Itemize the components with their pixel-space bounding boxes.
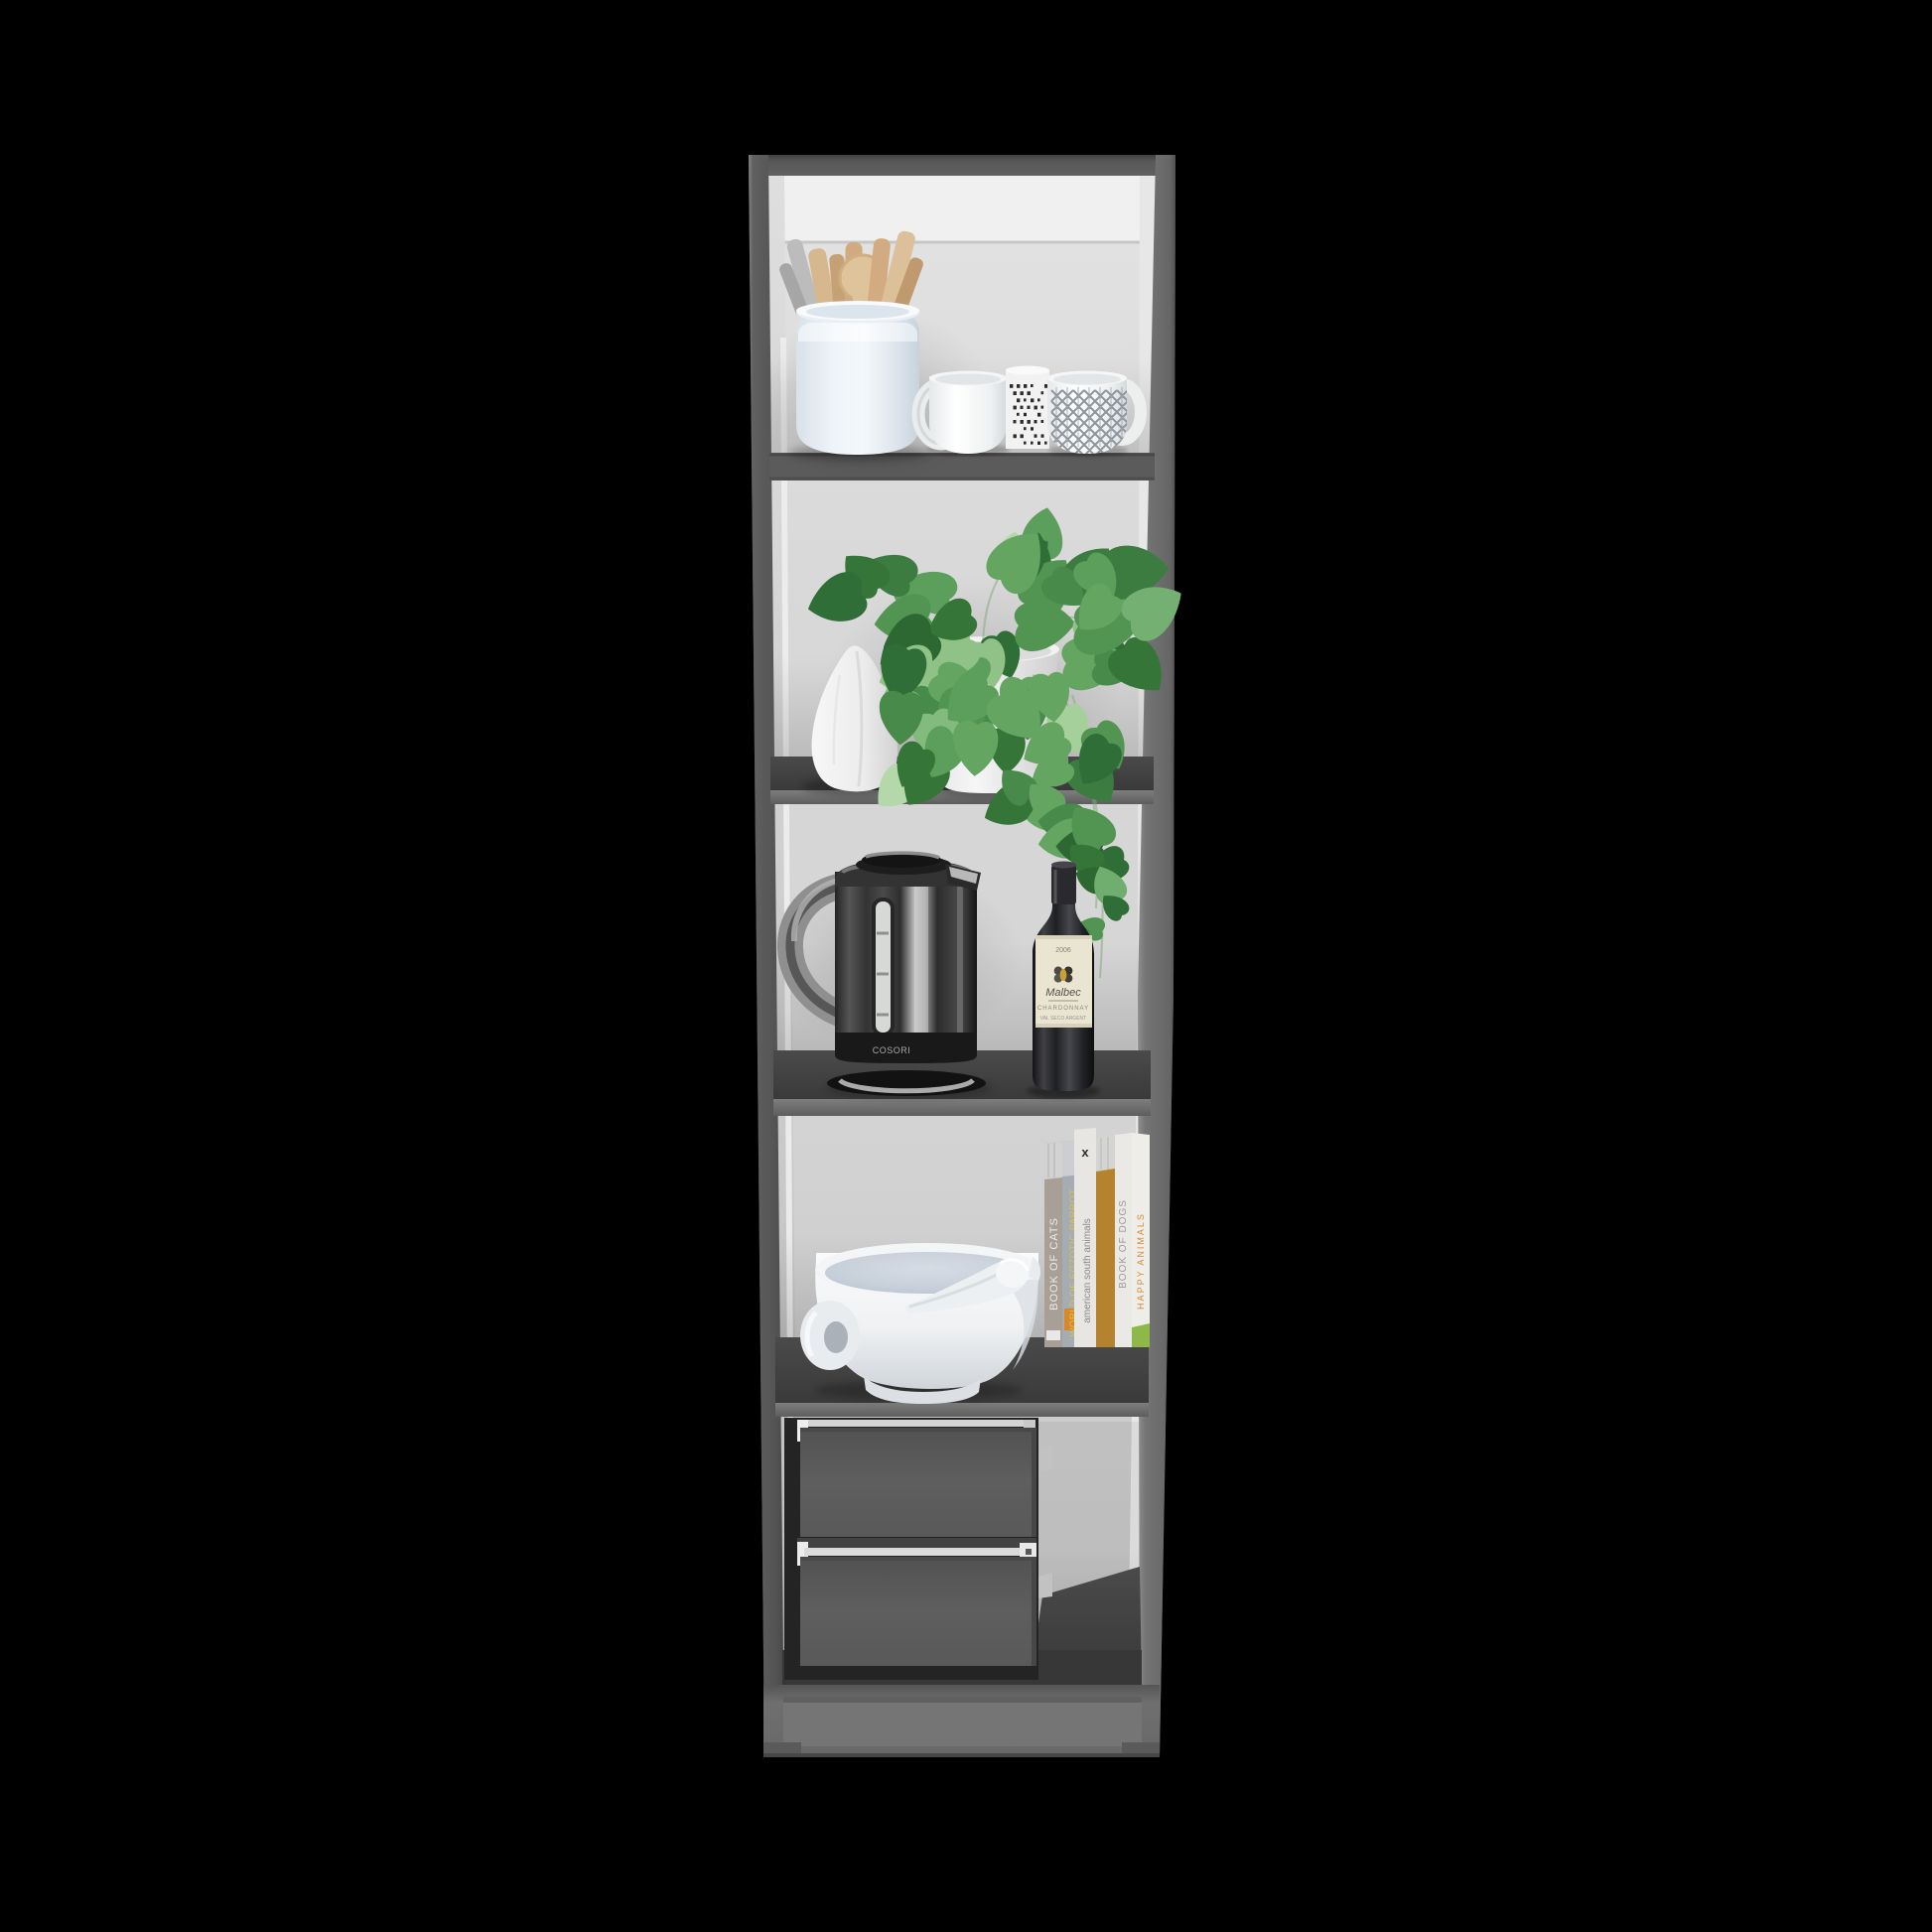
svg-text:COSORI: COSORI: [873, 1045, 911, 1055]
svg-text:Malbec: Malbec: [1045, 987, 1081, 999]
svg-text:VAL SECO ARGENT: VAL SECO ARGENT: [1040, 1016, 1086, 1022]
svg-text:HAPPY ANIMALS: HAPPY ANIMALS: [1136, 1212, 1146, 1310]
svg-text:x: x: [1081, 1145, 1089, 1160]
svg-text:BOOK OF DOGS: BOOK OF DOGS: [1118, 1199, 1129, 1289]
svg-text:american south animals: american south animals: [1082, 1218, 1093, 1323]
svg-text:2006: 2006: [1055, 947, 1071, 954]
svg-text:CHARDONNAY: CHARDONNAY: [1037, 1006, 1089, 1012]
svg-text:BOOK OF CATS: BOOK OF CATS: [1048, 1217, 1060, 1311]
